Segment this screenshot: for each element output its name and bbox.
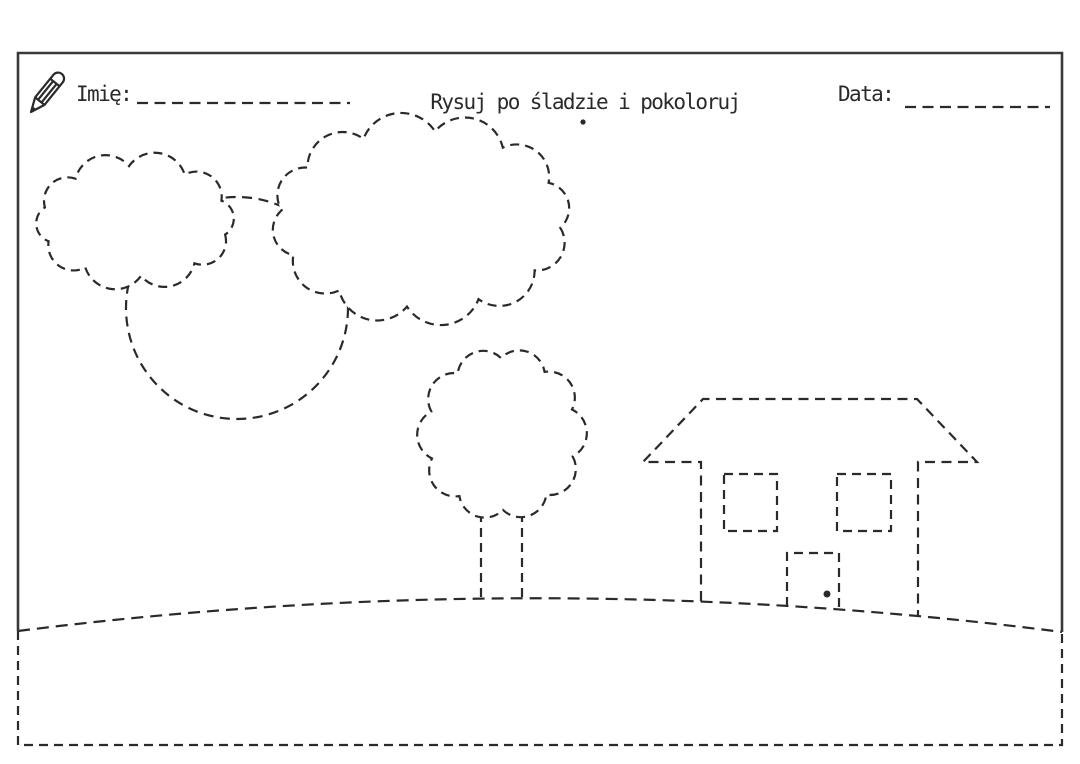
house-window-left xyxy=(724,474,777,531)
underground-dashed-frame xyxy=(18,631,1062,745)
worksheet-drawing xyxy=(0,0,1080,764)
worksheet-page: Imię: Rysuj po śladzie i pokoloruj Data: xyxy=(0,0,1080,764)
doorknob-dot xyxy=(824,591,831,598)
page-border-solid xyxy=(18,53,1062,632)
page-title: Rysuj po śladzie i pokoloruj xyxy=(430,91,740,114)
large-cloud xyxy=(273,113,569,325)
house xyxy=(643,399,977,616)
tree-crown xyxy=(417,350,587,517)
house-roof-and-walls xyxy=(643,399,977,616)
house-door xyxy=(787,553,839,609)
name-label: Imię: xyxy=(76,83,131,106)
hill-ground-line xyxy=(18,598,1062,632)
date-label: Data: xyxy=(838,83,893,106)
small-cloud xyxy=(36,153,234,290)
pencil-icon xyxy=(26,70,66,116)
title-dot xyxy=(580,119,585,124)
house-window-right xyxy=(837,474,891,531)
